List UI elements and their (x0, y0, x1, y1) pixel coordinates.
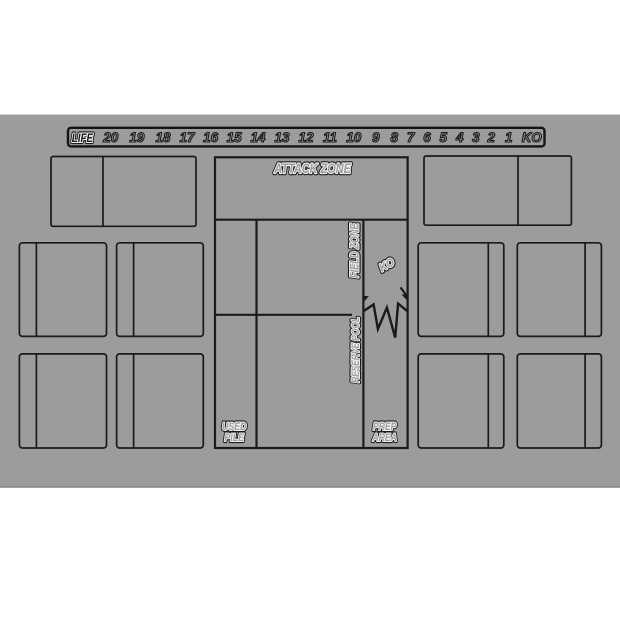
svg-text:KO: KO (522, 130, 542, 145)
svg-text:PILE: PILE (224, 432, 244, 444)
svg-text:11: 11 (323, 130, 337, 145)
svg-text:8: 8 (391, 130, 399, 145)
svg-text:15: 15 (227, 130, 243, 145)
svg-text:4: 4 (455, 130, 464, 145)
svg-text:20: 20 (102, 130, 119, 145)
svg-text:10: 10 (346, 130, 362, 145)
svg-text:17: 17 (179, 130, 196, 145)
svg-text:6: 6 (423, 130, 431, 145)
svg-text:2: 2 (486, 130, 495, 145)
svg-text:9: 9 (372, 130, 380, 145)
svg-text:19: 19 (129, 130, 145, 145)
svg-text:14: 14 (250, 130, 266, 145)
svg-text:3: 3 (472, 130, 480, 145)
svg-text:13: 13 (274, 130, 290, 145)
svg-text:16: 16 (203, 130, 219, 145)
svg-text:12: 12 (298, 130, 314, 145)
svg-text:RESERVE POOL: RESERVE POOL (350, 317, 362, 383)
svg-text:18: 18 (155, 130, 171, 145)
svg-text:ATTACK ZONE: ATTACK ZONE (273, 161, 351, 177)
svg-text:5: 5 (439, 130, 447, 145)
svg-text:LIFE: LIFE (72, 132, 94, 145)
svg-text:1: 1 (505, 130, 513, 145)
svg-text:AREA: AREA (372, 432, 397, 444)
svg-text:FIELD ZONE: FIELD ZONE (350, 222, 362, 278)
